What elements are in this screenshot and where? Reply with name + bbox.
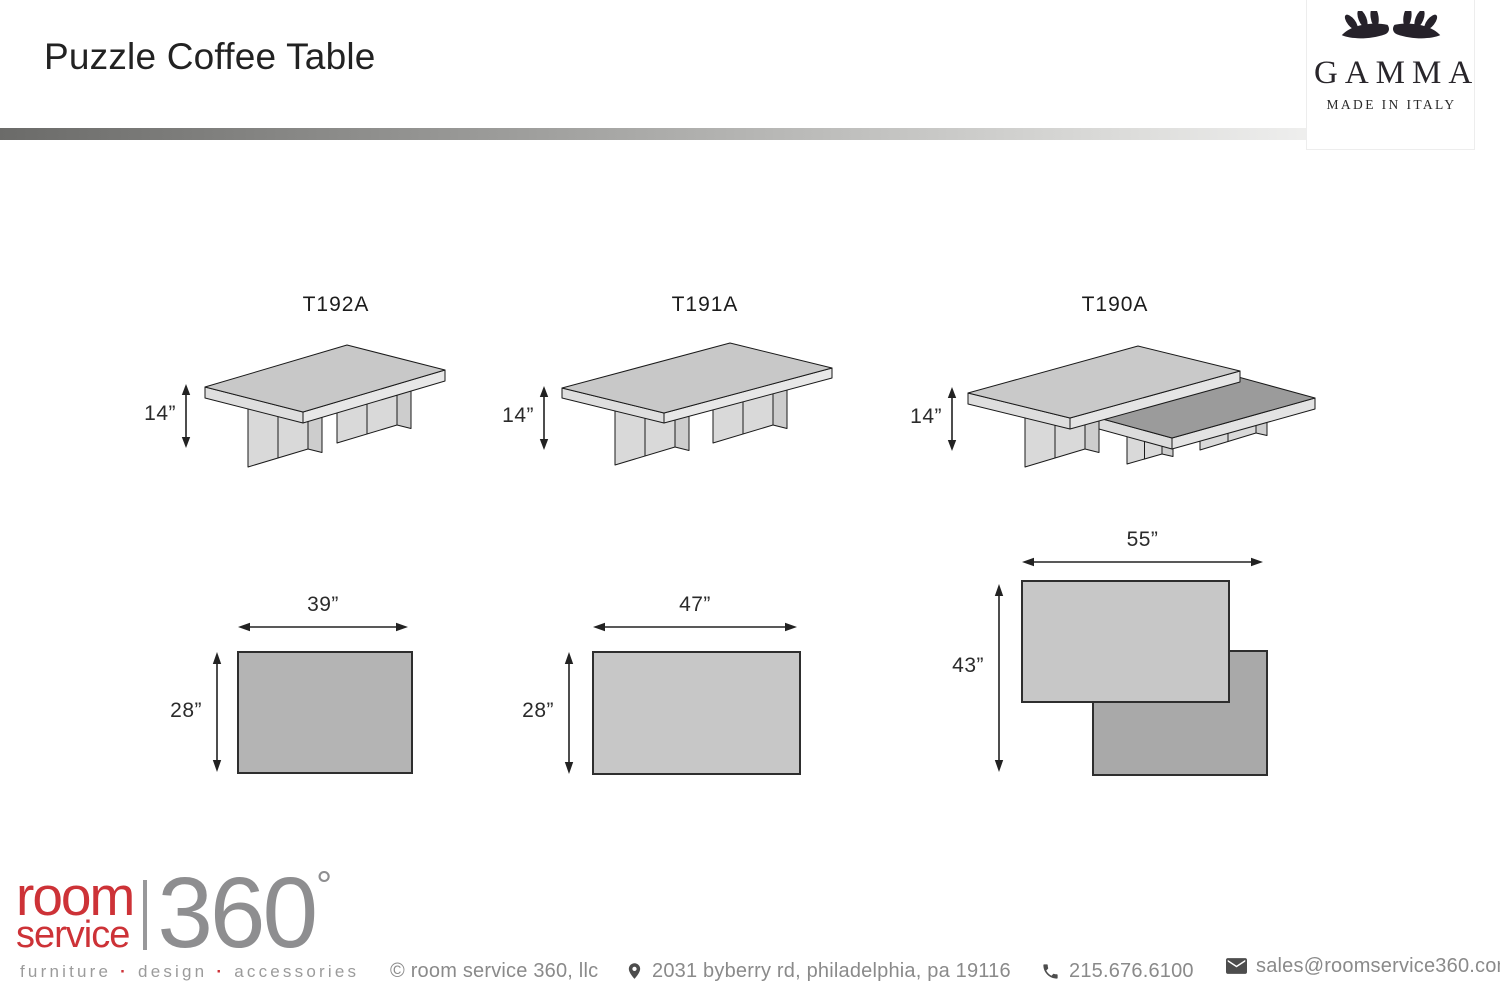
t191a-width-arrow (592, 620, 798, 634)
location-pin-icon (626, 960, 643, 982)
t191a-depth-arrow (562, 651, 576, 775)
logo-word-room: room (16, 874, 133, 918)
gamma-brand-name: GAMMA (1307, 55, 1474, 92)
logo-divider-bar (143, 880, 147, 950)
roomservice360-logo: room service 360° (16, 874, 332, 952)
t191a-width-dim: 47” (592, 593, 798, 617)
t192a-width-arrow (237, 620, 409, 634)
model-label-t192a: T192A (236, 293, 436, 317)
t191a-depth-dim: 28” (514, 699, 554, 723)
t191a-height-dim: 14” (498, 404, 534, 428)
tagline-separator-dot: · (120, 962, 129, 981)
logo-360: 360° (157, 874, 332, 952)
t192a-depth-dim: 28” (162, 699, 202, 723)
t192a-isometric-drawing (185, 338, 520, 490)
t190a-depth-dim: 43” (944, 654, 984, 678)
t192a-plan-rect (237, 651, 413, 774)
phone-icon (1041, 962, 1060, 981)
t190a-plan-rect-upper (1021, 580, 1230, 703)
footer-address: 2031 byberry rd, philadelphia, pa 19116 (626, 959, 1011, 983)
t192a-height-arrow (179, 383, 193, 449)
header-divider-bar (0, 128, 1500, 140)
model-label-t191a: T191A (605, 293, 805, 317)
tagline-word-accessories: accessories (234, 962, 359, 981)
roomservice360-wordmark: room service (16, 874, 133, 952)
t191a-plan-rect (592, 651, 801, 775)
logo-degree-symbol: ° (316, 864, 332, 908)
footer-phone: 215.676.6100 (1041, 959, 1194, 983)
gamma-made-in-italy: MADE IN ITALY (1307, 97, 1474, 113)
gamma-logo-box: GAMMA MADE IN ITALY (1306, 0, 1475, 150)
spec-sheet-page: Puzzle Coffee Table GAMMA MADE IN ITALY … (0, 0, 1500, 1000)
tagline-separator-dot: · (216, 962, 225, 981)
t192a-depth-arrow (210, 651, 224, 773)
logo-word-service: service (16, 918, 133, 952)
t190a-isometric-drawing (958, 338, 1330, 493)
t190a-height-arrow (945, 386, 959, 452)
gamma-hands-icon (1339, 11, 1443, 49)
t191a-height-arrow (537, 385, 551, 451)
footer-copyright: © room service 360, llc (390, 959, 598, 983)
footer-email[interactable]: sales@roomservice360.com (1226, 954, 1500, 978)
envelope-icon (1226, 958, 1247, 974)
t192a-width-dim: 39” (237, 593, 409, 617)
tagline-word-design: design (138, 962, 207, 981)
page-title: Puzzle Coffee Table (44, 36, 376, 78)
t190a-width-arrow (1021, 555, 1264, 569)
t190a-height-dim: 14” (906, 405, 942, 429)
t192a-height-dim: 14” (140, 402, 176, 426)
footer-email-text[interactable]: sales@roomservice360.com (1256, 955, 1500, 978)
t190a-width-dim: 55” (1021, 528, 1264, 552)
t190a-depth-arrow (992, 583, 1006, 773)
tagline-word-furniture: furniture (20, 962, 111, 981)
model-label-t190a: T190A (1015, 293, 1215, 317)
t191a-isometric-drawing (558, 338, 850, 490)
logo-tagline: furniture·design·accessories (20, 962, 359, 982)
